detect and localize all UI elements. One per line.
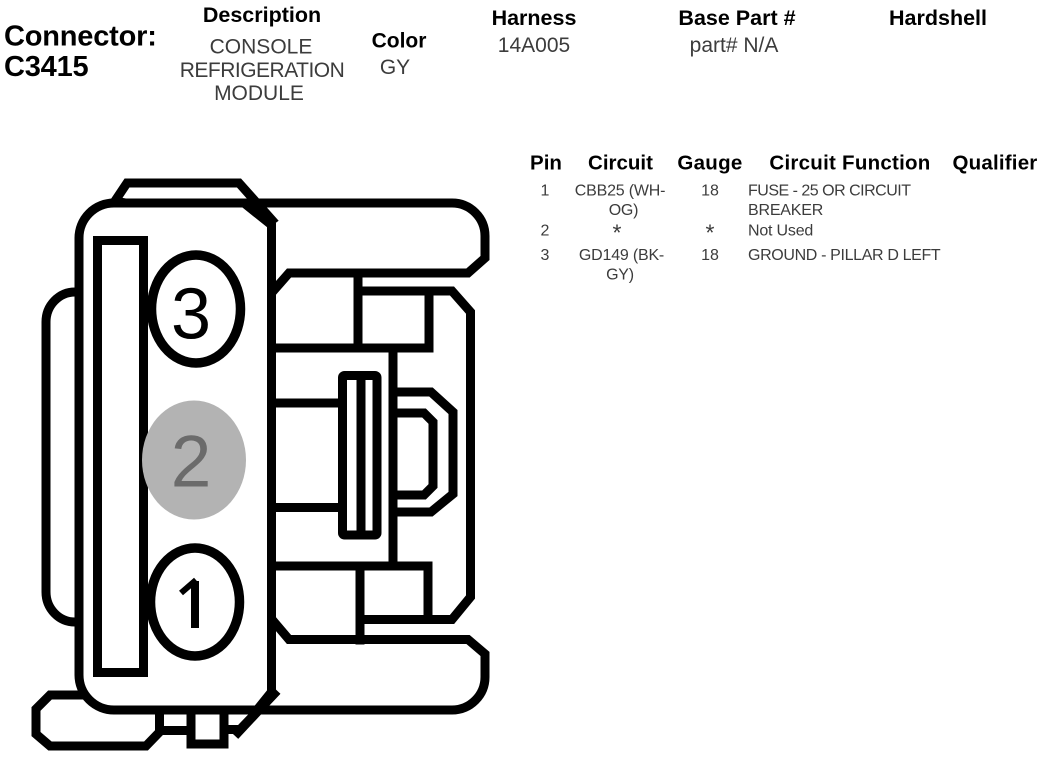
svg-text:Base Part #: Base Part #	[678, 6, 795, 30]
svg-text:Circuit: Circuit	[588, 152, 653, 175]
svg-text:1: 1	[541, 183, 550, 200]
svg-text:Description: Description	[203, 3, 321, 27]
svg-text:*: *	[613, 220, 622, 246]
svg-text:CONSOLE: CONSOLE	[210, 36, 313, 59]
svg-text:part# N/A: part# N/A	[690, 34, 779, 57]
svg-text:MODULE: MODULE	[214, 82, 304, 105]
svg-text:C3415: C3415	[4, 51, 89, 83]
svg-text:Pin: Pin	[530, 152, 562, 175]
svg-text:Gauge: Gauge	[677, 152, 742, 175]
svg-text:Circuit Function: Circuit Function	[769, 152, 930, 175]
svg-text:Not Used: Not Used	[748, 223, 813, 240]
svg-text:REFRIGERATION: REFRIGERATION	[180, 59, 345, 82]
svg-text:CBB25 (WH-: CBB25 (WH-	[575, 183, 665, 200]
svg-text:Qualifier: Qualifier	[953, 152, 1038, 175]
svg-text:14A005: 14A005	[498, 34, 570, 57]
svg-text:Harness: Harness	[492, 6, 577, 30]
svg-text:GY: GY	[380, 56, 410, 79]
svg-text:Connector:: Connector:	[4, 21, 157, 53]
svg-text:3: 3	[541, 247, 550, 264]
svg-text:Hardshell: Hardshell	[889, 6, 987, 30]
svg-text:GROUND - PILLAR D LEFT: GROUND - PILLAR D LEFT	[748, 247, 941, 264]
svg-text:Color: Color	[372, 30, 427, 53]
svg-text:GY): GY)	[606, 267, 634, 284]
svg-text:18: 18	[701, 247, 719, 264]
svg-text:GD149 (BK-: GD149 (BK-	[579, 247, 664, 264]
svg-text:2: 2	[171, 422, 212, 503]
svg-text:*: *	[706, 220, 715, 246]
svg-text:3: 3	[171, 275, 211, 355]
svg-text:BREAKER: BREAKER	[748, 202, 823, 219]
svg-text:2: 2	[541, 223, 550, 240]
svg-text:18: 18	[701, 183, 719, 200]
svg-text:FUSE - 25 OR CIRCUIT: FUSE - 25 OR CIRCUIT	[748, 183, 911, 200]
svg-text:OG): OG)	[609, 202, 639, 219]
